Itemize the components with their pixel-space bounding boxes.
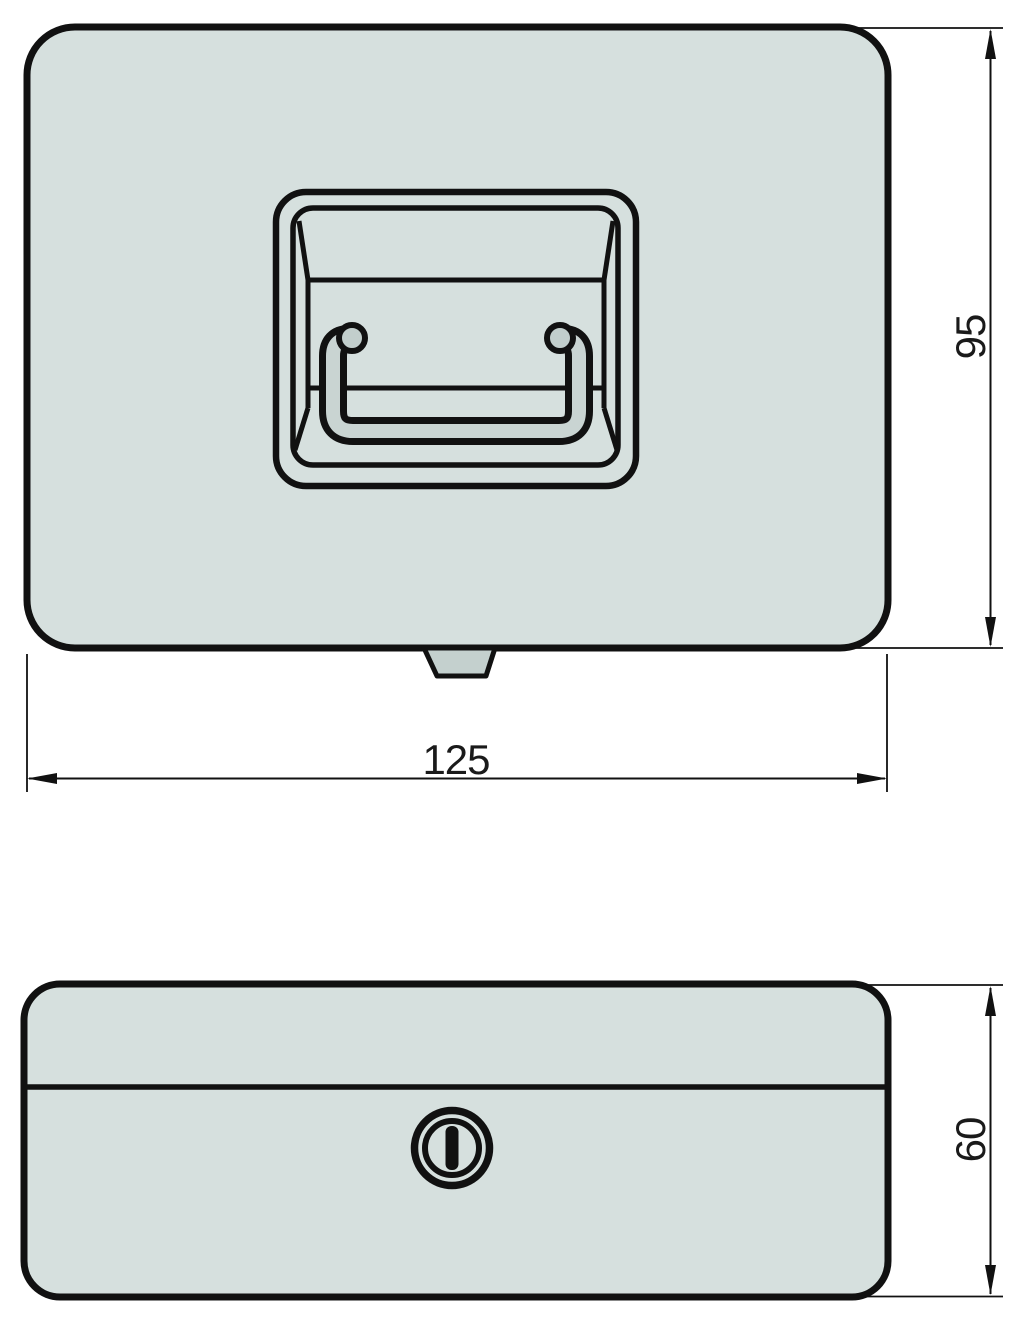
front-view (24, 984, 888, 1297)
dimension-height-label: 60 (947, 1118, 994, 1163)
cash-box-drawing: 125 95 60 (0, 0, 1024, 1325)
keyhole-slot (446, 1126, 459, 1170)
arrowhead-top (985, 29, 996, 59)
arrowhead-top (985, 986, 996, 1016)
technical-drawing-canvas: 125 95 60 (0, 0, 1024, 1325)
dimension-depth-label: 95 (947, 315, 994, 360)
latch-tab (424, 648, 495, 676)
dimension-width-label: 125 (422, 736, 489, 783)
keyhole-icon (415, 1111, 490, 1186)
arrowhead-left (27, 773, 57, 784)
top-view (27, 27, 888, 676)
arrowhead-bottom (985, 617, 996, 647)
handle-pivot-right (547, 325, 573, 351)
arrowhead-right (857, 773, 887, 784)
arrowhead-bottom (985, 1265, 996, 1295)
top-view-outline (27, 27, 888, 648)
handle-pivot-left (339, 325, 365, 351)
